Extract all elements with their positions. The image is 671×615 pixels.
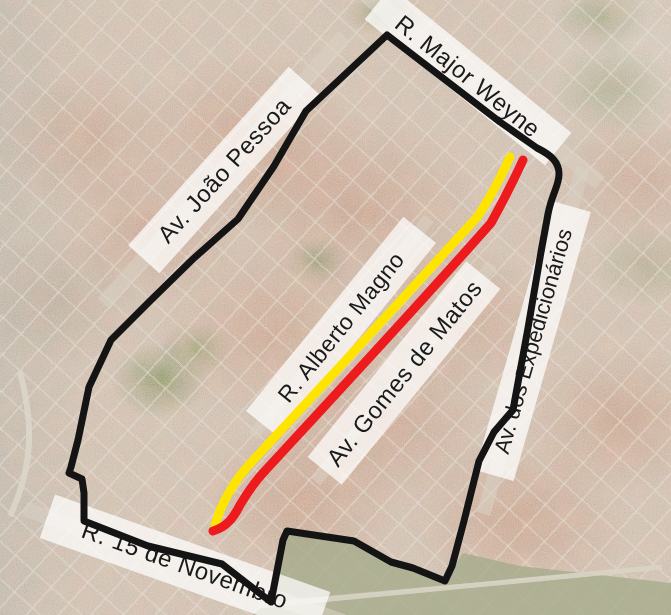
aerial-map-figure: R. Major Weyne Av. João Pessoa R. Albert… <box>0 0 671 615</box>
street-label-expedicionarios: Av. dos Expedicionários <box>464 162 602 519</box>
left-curved-road <box>10 372 29 516</box>
region-boundary-path <box>69 35 559 602</box>
street-label-text-major-weyne: R. Major Weyne <box>390 9 546 142</box>
street-label-joao-pessoa: Av. João Pessoa <box>88 22 360 318</box>
map-overlay-svg: R. Major Weyne Av. João Pessoa R. Albert… <box>0 0 671 615</box>
